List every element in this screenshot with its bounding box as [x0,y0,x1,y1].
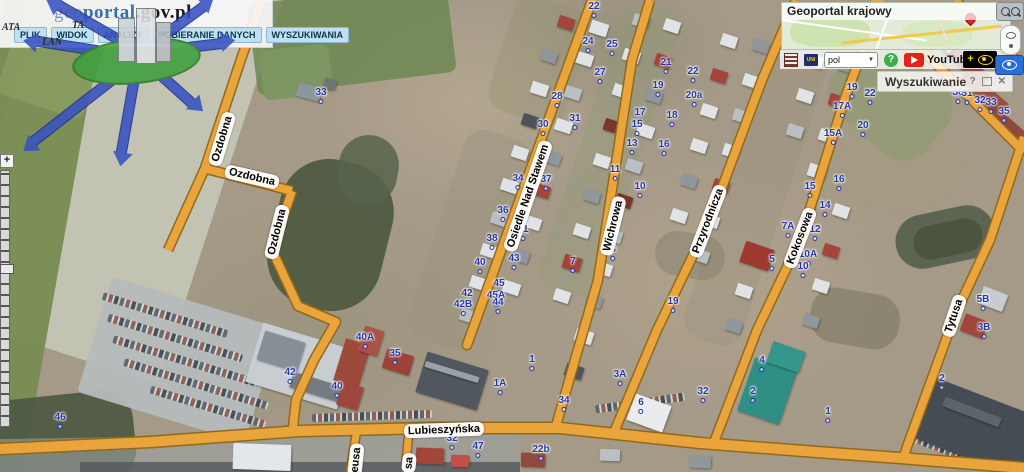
address-label: 19 [667,297,678,313]
zoom-track[interactable] [0,170,10,427]
address-label: 2 [939,374,945,390]
overview-minimap[interactable]: Geoportal krajowy [781,2,1011,50]
search-help-icon[interactable]: ? [970,76,976,87]
address-label: 37 [540,175,551,191]
address-label: 5 [769,255,775,271]
address-label: 36 [497,206,508,222]
address-label: 7 [570,257,576,273]
address-label: 16 [658,140,669,156]
mini-eye-icon [1006,32,1016,39]
contrast-plus-icon: + [967,52,973,67]
address-label: 33 [985,98,996,114]
menu-item-pobieranie-danych[interactable]: POBIERANIE DANYCH [153,27,262,43]
menu-item-widok[interactable]: WIDOK [51,27,94,43]
address-label: 43 [508,254,519,270]
layer-mini-toolbar[interactable] [1000,25,1021,55]
address-label: 40 [474,258,485,274]
logo-gov: .gov.pl [136,2,192,23]
address-label: 25 [606,40,617,56]
road-lubieszynska [0,428,1024,468]
address-label: 30 [537,120,548,136]
help-button[interactable]: ? [884,53,898,67]
address-label: 3B [978,323,991,339]
address-label: 10 [634,182,645,198]
address-label: 32 [697,387,708,403]
address-label: 22 [864,89,875,105]
top-menu-bar: geoportal.gov.pl PLIKWIDOKANALIZYPOBIERA… [0,0,273,48]
address-label: 22 [588,2,599,18]
search-tools-button[interactable] [996,2,1024,21]
eye-icon [1002,60,1017,70]
street-label: sa [401,452,417,472]
chevron-down-icon: ▼ [868,57,874,63]
contrast-eye-icon [978,55,993,65]
address-label: 18 [666,111,677,127]
minimap-title: Geoportal krajowy [782,3,1010,20]
qr-code-icon[interactable] [784,53,798,67]
address-label: 40A [356,333,374,349]
address-label: 15 [631,120,642,136]
address-label: 20 [857,121,868,137]
address-label: 15 [804,182,815,198]
address-label: 22b [532,445,549,461]
address-label: 14 [819,201,830,217]
address-label: 15A [824,129,842,145]
address-label: 34 [512,174,523,190]
language-value: pol [828,55,840,65]
street-label: eusa [347,443,364,472]
address-label: 13 [626,139,637,155]
address-label: 47 [472,442,483,458]
address-label: 24 [582,37,593,53]
address-label: 34 [558,396,569,412]
address-label: 3A [614,370,627,386]
address-label: 19 [652,81,663,97]
search-panel: Wyszukiwanie ? ✕ [877,71,1013,92]
magnifier-icon [1011,7,1020,16]
address-label: 27 [594,68,605,84]
address-label: 33 [315,88,326,104]
address-label: 28 [551,92,562,108]
mini-dot-icon [1009,44,1013,48]
address-label: 4 [759,356,765,372]
address-label: 1A [494,379,507,395]
address-label: 1 [529,355,535,371]
maximize-icon[interactable] [982,77,992,86]
address-label: 42 [284,368,295,384]
address-label: 38 [486,234,497,250]
map-viewport[interactable]: 2224252728303121221920a17181513163437364… [0,0,1024,472]
accessibility-widget[interactable]: + [963,51,997,68]
logo-portal: portal [83,2,136,23]
address-label: 44 [492,298,503,314]
menu-item-plik[interactable]: PLIK [14,27,47,43]
street-label: Lubieszyńska [404,422,485,439]
eu-uni-icon[interactable]: UNI [804,54,818,66]
address-label: 32 [974,96,985,112]
address-label: 2 [750,387,756,403]
address-label: 35 [389,349,400,365]
logo-geo: geo [54,2,83,23]
zoom-in-button[interactable]: + [0,154,14,168]
address-label: 21 [660,58,671,74]
address-label: 11 [610,165,621,181]
address-label: 40 [331,382,342,398]
address-label: 20a [686,91,703,107]
address-label: 19 [846,83,857,99]
visibility-toggle-button[interactable] [995,55,1024,75]
address-label: 1 [825,407,831,423]
search-panel-title: Wyszukiwanie [878,75,970,89]
address-label: 6 [638,398,644,414]
menu-item-wyszukiwania[interactable]: WYSZUKIWANIA [266,27,350,43]
magnifier-icon [1001,7,1010,16]
main-menu: PLIKWIDOKANALIZYPOBIERANIE DANYCHWYSZUKI… [14,27,349,43]
address-label: 46 [54,413,65,429]
address-label: 42B [454,300,472,316]
address-label: 22 [687,67,698,83]
address-label: 31 [569,114,580,130]
language-select[interactable]: pol ▼ [824,52,878,68]
close-icon[interactable]: ✕ [998,76,1006,87]
address-label: 35 [998,107,1009,123]
address-label: 17A [833,102,851,118]
zoom-control[interactable]: + [0,154,12,427]
address-label: 10 [797,262,808,278]
youtube-play-icon [904,53,924,67]
menu-item-analizy[interactable]: ANALIZY [98,27,149,43]
address-label: 5B [977,295,990,311]
zoom-slider-handle[interactable] [0,264,14,274]
address-label: 16 [833,175,844,191]
geoportal-logo[interactable]: geoportal.gov.pl [54,2,192,24]
